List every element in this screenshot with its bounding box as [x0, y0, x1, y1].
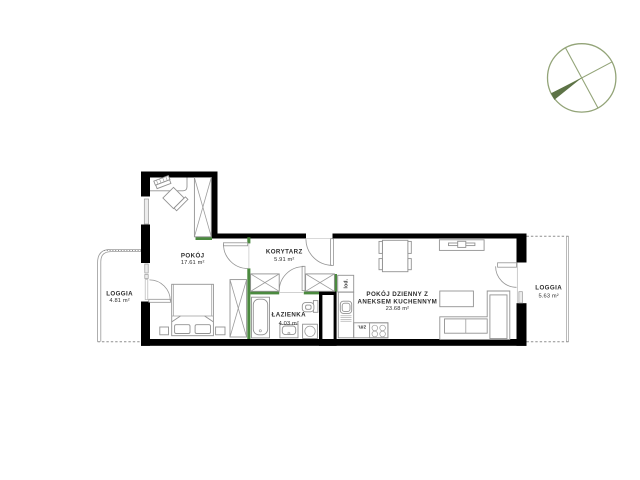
svg-text:ANEKSEM KUCHENNYM: ANEKSEM KUCHENNYM — [358, 298, 438, 305]
svg-text:ŁAZIENKA: ŁAZIENKA — [272, 312, 307, 319]
svg-text:POKÓJ DZIENNY Z: POKÓJ DZIENNY Z — [366, 290, 428, 298]
svg-text:LOGGIA: LOGGIA — [535, 284, 562, 291]
svg-text:POKÓJ: POKÓJ — [181, 251, 205, 259]
svg-text:LOGGIA: LOGGIA — [106, 290, 133, 297]
svg-text:lod.: lod. — [344, 278, 350, 288]
svg-text:5.91 m²: 5.91 m² — [274, 257, 294, 263]
svg-text:23.68 m²: 23.68 m² — [386, 306, 410, 312]
svg-text:KORYTARZ: KORYTARZ — [266, 248, 303, 255]
svg-text:4.03 m²: 4.03 m² — [279, 321, 299, 327]
svg-text:5.63 m²: 5.63 m² — [539, 293, 559, 299]
svg-text:zm.: zm. — [357, 324, 366, 330]
svg-text:17.61 m²: 17.61 m² — [181, 260, 205, 266]
svg-text:4.81 m²: 4.81 m² — [109, 298, 129, 304]
